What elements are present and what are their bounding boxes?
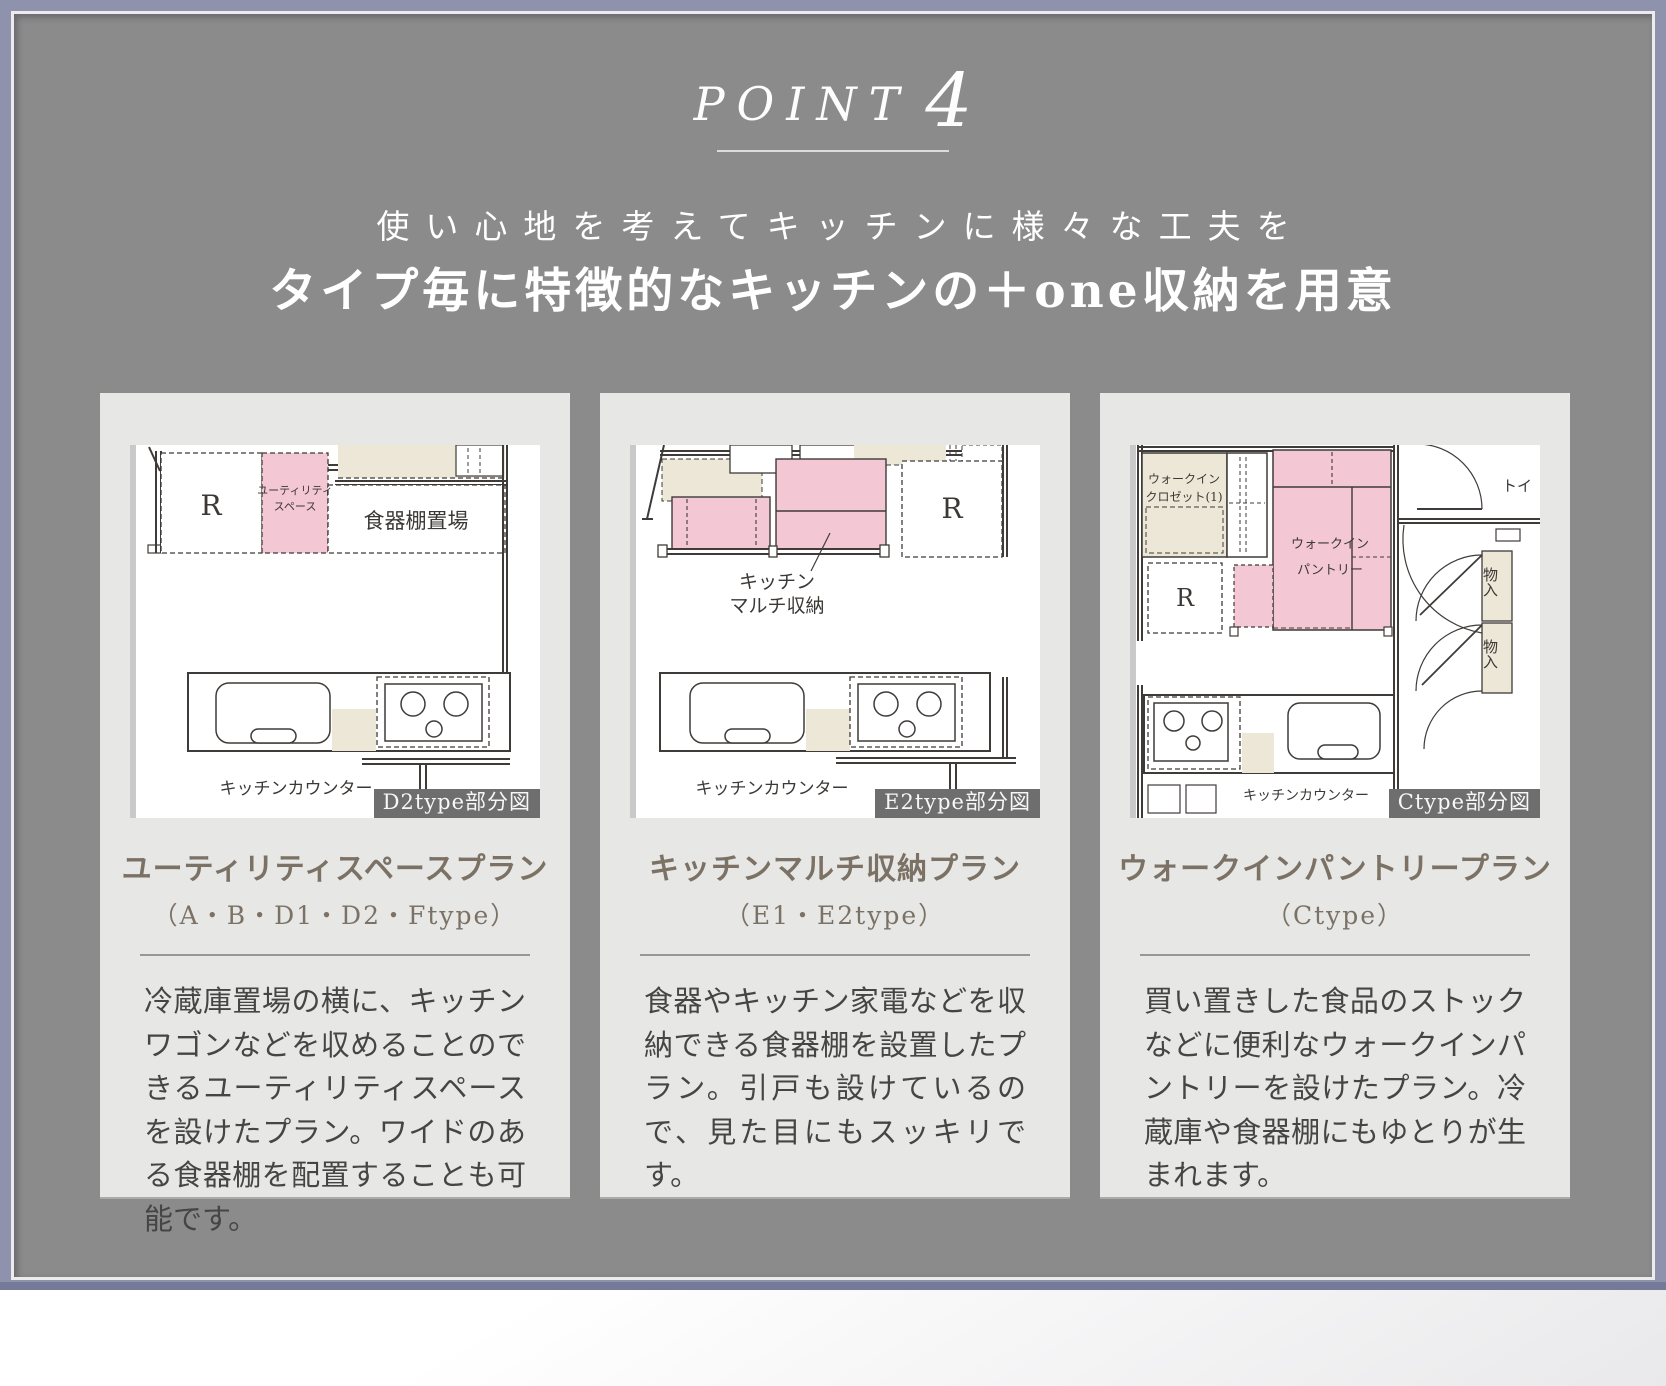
point-underline xyxy=(717,150,949,152)
plan-type-badge: D2type部分図 xyxy=(374,789,540,818)
card-type-list: （E1・E2type） xyxy=(600,896,1070,932)
card-type-list: （Ctype） xyxy=(1100,896,1570,932)
fridge-label: R xyxy=(200,489,222,522)
card-utility-space-plan: R ユーティリティ スペース 食器棚置場 キッチンカウンター D2type部分図… xyxy=(100,393,570,1197)
card-type-list: （A・B・D1・D2・Ftype） xyxy=(100,896,570,932)
section-subtitle: 使い心地を考えてキッチンに様々な工夫を xyxy=(0,200,1666,248)
card-title: ユーティリティスペースプラン xyxy=(108,844,562,888)
pantry-label-1: ウォークイン xyxy=(1291,537,1369,552)
counter-label: キッチンカウンター xyxy=(696,779,849,799)
plan-edge-shadow xyxy=(1130,445,1136,818)
card-description: 冷蔵庫置場の横に、キッチンワゴンなどを収めることのできるユーティリティスペースを… xyxy=(144,980,526,1241)
card-divider xyxy=(640,954,1030,956)
fridge-label: R xyxy=(941,492,963,525)
card-title: ウォークインパントリープラン xyxy=(1108,844,1562,888)
framed-panel: POINT4 使い心地を考えてキッチンに様々な工夫を タイプ毎に特徴的なキッチン… xyxy=(0,0,1666,1290)
plan-edge-shadow xyxy=(130,445,136,818)
plan-type-badge: Ctype部分図 xyxy=(1389,789,1540,818)
page-bottom-strip xyxy=(0,1290,1666,1386)
multi-storage-label-2: マルチ収納 xyxy=(729,595,824,617)
plan-cards-row: R ユーティリティ スペース 食器棚置場 キッチンカウンター D2type部分図… xyxy=(100,393,1570,1197)
card-divider xyxy=(1140,954,1530,956)
storage-upper-label: 物入 xyxy=(1481,567,1499,597)
utility-label-2: スペース xyxy=(274,500,317,513)
point-label: POINT xyxy=(694,77,912,131)
floor-plan-e2type-drawing: R キッチン マルチ収納 キッチンカウンター xyxy=(630,445,1040,818)
pantry-label-2: パントリー xyxy=(1297,563,1363,578)
card-walk-in-pantry-plan: ウォークイン クロゼット(1) ウォークイン パントリー R トイ 物入 物入 … xyxy=(1100,393,1570,1197)
point-heading: POINT4 xyxy=(0,58,1666,144)
card-description: 買い置きした食品のストックなどに便利なウォークインパントリーを設けたプラン。冷蔵… xyxy=(1144,980,1526,1198)
corridor-door-arc xyxy=(1403,525,1482,633)
point-number: 4 xyxy=(925,58,972,144)
card-title: キッチンマルチ収納プラン xyxy=(608,844,1062,888)
plan-type-badge: E2type部分図 xyxy=(875,789,1040,818)
counter-label: キッチンカウンター xyxy=(1243,788,1369,804)
fridge-label: R xyxy=(1176,584,1195,612)
floor-plan-ctype: ウォークイン クロゼット(1) ウォークイン パントリー R トイ 物入 物入 … xyxy=(1130,445,1540,818)
counter-label: キッチンカウンター xyxy=(220,779,373,799)
utility-label-1: ユーティリティ xyxy=(257,484,333,497)
closet-label-2: クロゼット(1) xyxy=(1146,490,1223,504)
floor-plan-d2type-drawing: R ユーティリティ スペース 食器棚置場 キッチンカウンター xyxy=(130,445,540,818)
floor-plan-d2type: R ユーティリティ スペース 食器棚置場 キッチンカウンター D2type部分図 xyxy=(130,445,540,818)
kitchen-multi-storage-highlight xyxy=(776,459,886,549)
floor-plan-ctype-drawing: ウォークイン クロゼット(1) ウォークイン パントリー R トイ 物入 物入 … xyxy=(1130,445,1540,818)
card-description: 食器やキッチン家電などを収納できる食器棚を設置したプラン。引戸も設けているので、… xyxy=(644,980,1026,1198)
multi-storage-label-1: キッチン xyxy=(739,571,815,593)
card-divider xyxy=(140,954,530,956)
walk-in-closet xyxy=(1142,453,1227,557)
cupboard-label: 食器棚置場 xyxy=(364,509,469,533)
floor-plan-e2type: R キッチン マルチ収納 キッチンカウンター E2type部分図 xyxy=(630,445,1040,818)
toilet-door-arc xyxy=(1417,445,1482,509)
toilet-label: トイ xyxy=(1502,477,1532,495)
closet-label-1: ウォークイン xyxy=(1148,472,1220,486)
plan-edge-shadow xyxy=(630,445,636,818)
section-title: タイプ毎に特徴的なキッチンの＋one収納を用意 xyxy=(0,252,1666,321)
card-kitchen-multi-storage-plan: R キッチン マルチ収納 キッチンカウンター E2type部分図 キッチンマルチ… xyxy=(600,393,1070,1197)
storage-lower-label: 物入 xyxy=(1481,639,1499,669)
closet-door-leaves xyxy=(1420,555,1482,685)
